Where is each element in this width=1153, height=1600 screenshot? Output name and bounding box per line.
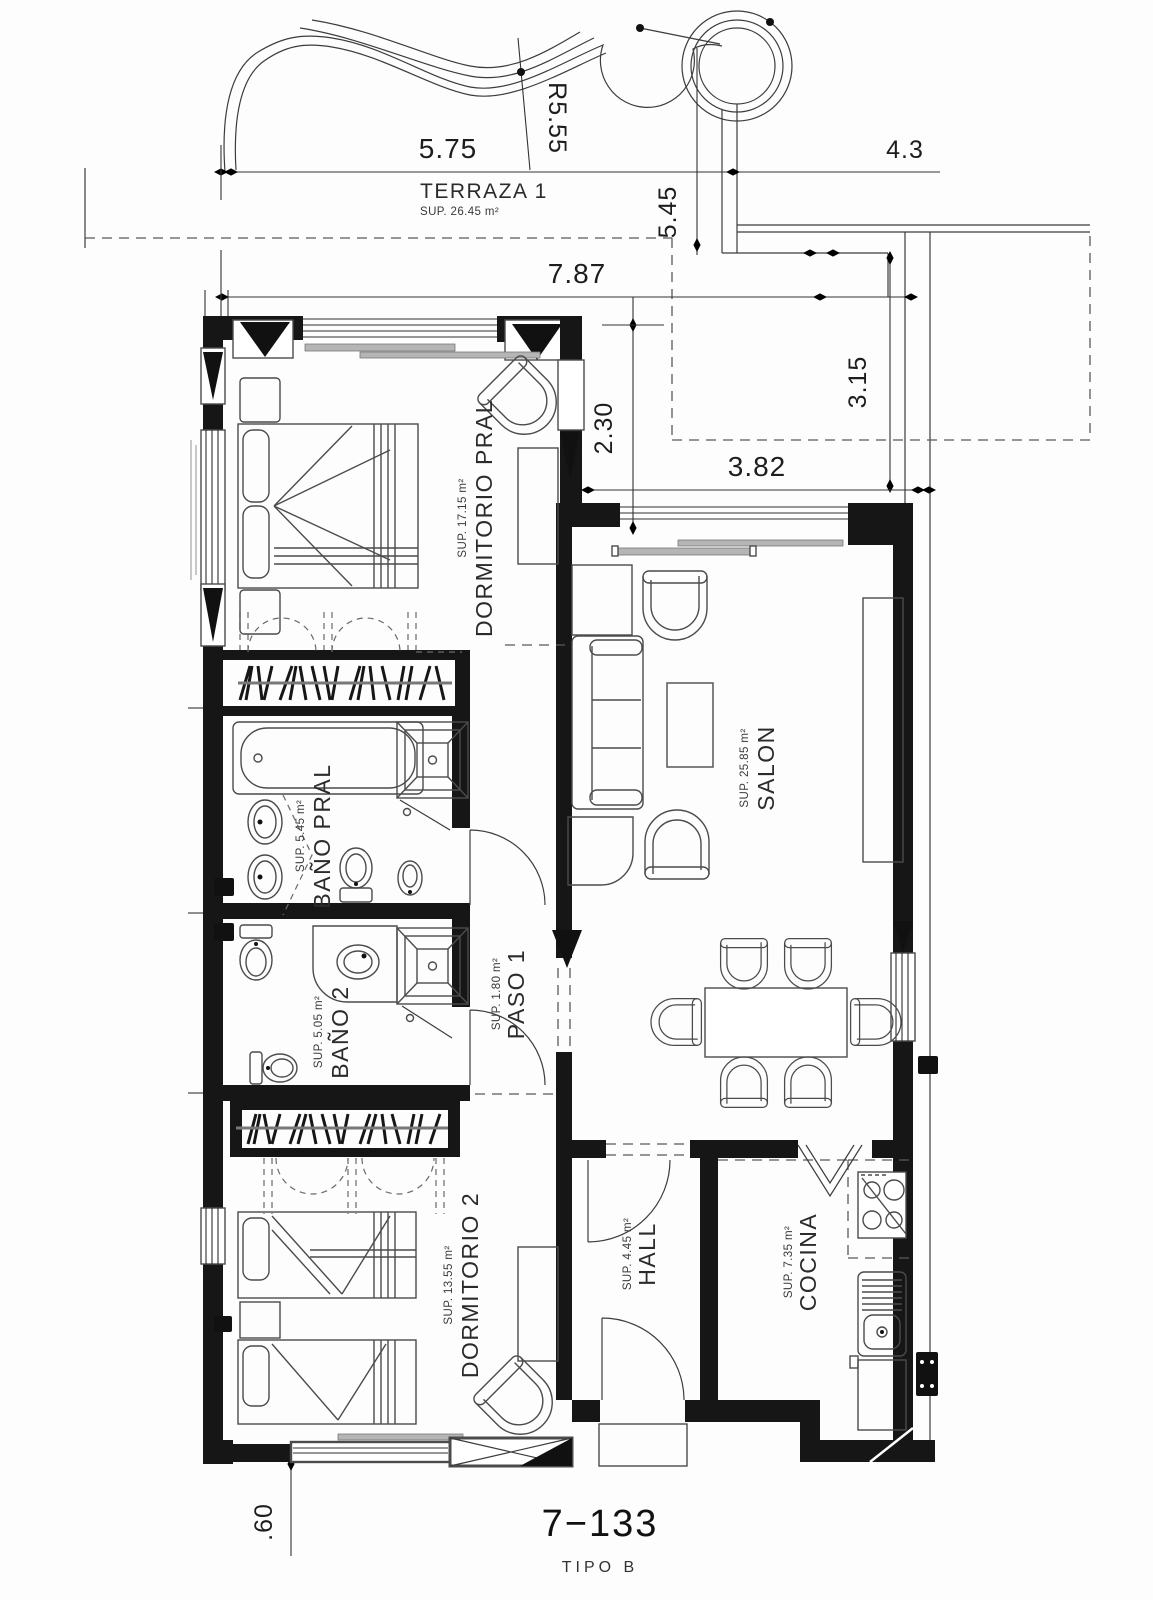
kitchen-counter-tick: [850, 1356, 858, 1368]
coffee-table: [667, 683, 713, 767]
armchair-salon-1: [643, 571, 707, 640]
bidet-pral: [398, 861, 422, 895]
plan-title: 7−133: [542, 1503, 659, 1545]
floor-plan-canvas: 5.75 4.3 R5.55 5.45 7.87 2.30 3.15 3.82 …: [0, 0, 1153, 1600]
toilet-pral: [340, 848, 372, 902]
floor-plan-page: 5.75 4.3 R5.55 5.45 7.87 2.30 3.15 3.82 …: [0, 0, 1153, 1600]
sideboard: [568, 817, 633, 885]
label-cocina: COCINA: [795, 1213, 821, 1311]
label-bano-2: BAÑO 2: [327, 985, 353, 1078]
label-bano-pral: BAÑO PRAL: [309, 763, 335, 908]
armchair-salon-2: [645, 810, 709, 879]
area-cocina: SUP. 7.35 m²: [783, 1226, 795, 1298]
dim-terrace2-depth: 3.15: [844, 356, 872, 409]
bed-single-2: [238, 1340, 416, 1424]
bed-single-1: [238, 1212, 416, 1298]
area-dormitorio-pral: SUP. 17.15 m²: [457, 478, 469, 557]
dim-top-right-width: 4.3: [886, 136, 924, 164]
area-bano-pral: SUP. 5.45 m²: [295, 800, 307, 872]
bed-double: [238, 378, 418, 634]
double-sink: [248, 800, 282, 899]
dim-radius: R5.55: [543, 82, 571, 154]
label-terraza-1: TERRAZA 1: [420, 180, 548, 203]
area-paso-1: SUP. 1.80 m²: [491, 958, 503, 1030]
dim-top-width: 5.75: [419, 133, 478, 164]
area-hall: SUP. 4.45 m²: [622, 1218, 634, 1290]
dim-terrace-depth: 5.45: [654, 186, 682, 239]
area-dormitorio-2: SUP. 13.55 m²: [443, 1245, 455, 1324]
label-dormitorio-pral: DORMITORIO PRAL: [471, 399, 497, 637]
dim-bottom-offset: .60: [250, 1503, 278, 1541]
dining-set: [651, 939, 901, 1108]
area-terraza-1: SUP. 26.45 m²: [420, 206, 499, 218]
terrace-curved-edge: [85, 11, 1090, 1462]
area-salon: SUP. 25.85 m²: [739, 728, 751, 807]
area-bano-2: SUP. 5.05 m²: [313, 996, 325, 1068]
bidet-2: [250, 1052, 297, 1084]
nightstand-dorm2: [240, 1302, 280, 1338]
dim-mid-width: 7.87: [548, 258, 607, 289]
label-dormitorio-2: DORMITORIO 2: [457, 1192, 483, 1378]
side-table-1: [572, 565, 632, 635]
plan-subtitle: TIPO B: [562, 1559, 638, 1576]
sink-2: [313, 926, 397, 1002]
dim-salon-offset: 2.30: [590, 402, 618, 455]
socket-symbols: [214, 878, 938, 1396]
label-salon: SALON: [753, 725, 779, 810]
toilet-2: [240, 925, 272, 980]
door-arcs: [470, 830, 862, 1400]
desk-dorm-pral: [518, 448, 558, 564]
dim-terrace2-width: 3.82: [728, 451, 787, 482]
label-hall: HALL: [634, 1222, 660, 1286]
sofa: [572, 636, 643, 809]
armchair-dorm2: [471, 1353, 565, 1447]
desk-dorm2: [518, 1247, 558, 1361]
label-paso-1: PASO 1: [503, 949, 529, 1039]
stove: [858, 1172, 906, 1238]
